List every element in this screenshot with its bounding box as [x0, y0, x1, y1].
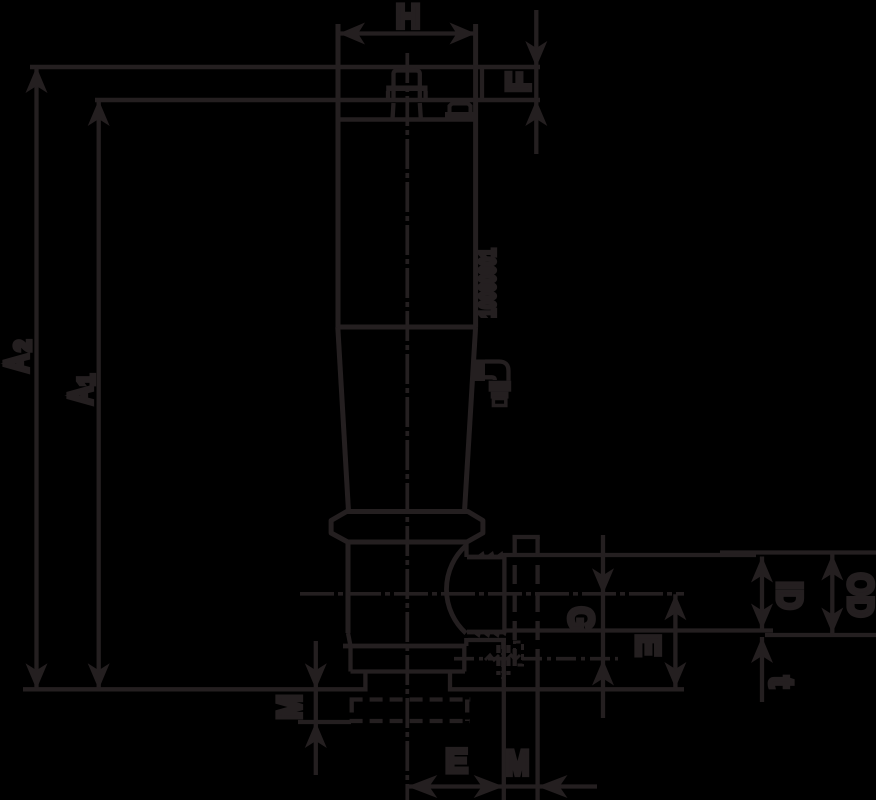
- svg-text:H: H: [396, 0, 421, 36]
- svg-text:1: 1: [73, 374, 99, 386]
- svg-text:M: M: [270, 694, 308, 719]
- svg-text:A: A: [63, 386, 100, 405]
- svg-text:E: E: [445, 743, 468, 781]
- svg-text:M: M: [505, 743, 529, 782]
- svg-text:10060901: 10060901: [475, 249, 500, 318]
- svg-text:F: F: [500, 72, 538, 93]
- svg-text:OD: OD: [841, 573, 876, 618]
- svg-text:A: A: [0, 354, 36, 373]
- svg-text:G: G: [560, 606, 599, 630]
- svg-text:ID: ID: [770, 581, 809, 610]
- svg-text:E: E: [628, 634, 666, 657]
- svg-text:t: t: [762, 676, 800, 687]
- svg-text:2: 2: [9, 340, 35, 352]
